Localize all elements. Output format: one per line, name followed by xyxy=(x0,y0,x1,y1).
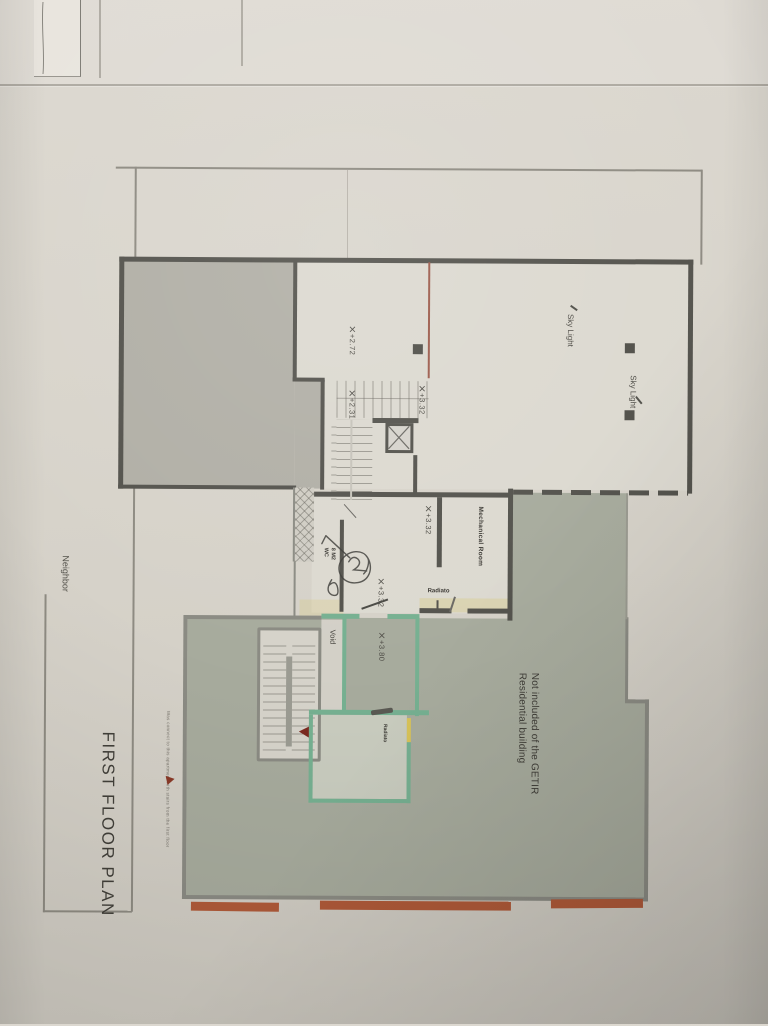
wall-mech-bottom-b xyxy=(467,608,512,613)
door-yellow xyxy=(407,718,411,742)
annotation-arrow-icon xyxy=(166,776,176,786)
spot-level-icon xyxy=(378,578,385,585)
neighbor-label: Neighbor xyxy=(61,555,71,592)
skylight-square-1 xyxy=(625,343,635,353)
residential-fill-main-upper xyxy=(187,617,627,703)
elevation-marker-upper-room: +2.72 xyxy=(348,326,357,356)
void-label: Void xyxy=(328,630,337,645)
wall-below-elevator xyxy=(413,455,417,493)
spot-level-icon xyxy=(349,326,356,333)
wc-label: WC 8 M2 xyxy=(322,548,336,560)
spot-level-icon xyxy=(419,385,426,392)
elevation-marker-stair-top: +3.32 xyxy=(418,385,427,415)
elevation-marker-hall-south: +3.32 xyxy=(377,578,386,608)
green-wall-roomB-left xyxy=(308,715,312,803)
radiator-label-mech: Radiato xyxy=(428,588,450,594)
orange-strip-1 xyxy=(191,902,279,912)
sheet-border-left xyxy=(43,594,46,912)
mechanical-room-label: Mechanical Room xyxy=(477,506,484,566)
neighbor-roof-fill xyxy=(120,261,295,489)
floor-plan-photo: { "title_block": { "title": "FIRST FLOOR… xyxy=(0,0,768,1024)
wc-label-line1: WC xyxy=(322,548,329,560)
skylight-square-3 xyxy=(413,344,423,354)
page-title: FIRST FLOOR PLAN xyxy=(97,732,118,917)
stair-left-divider xyxy=(350,420,352,500)
wall-mech-bottom-a xyxy=(419,608,451,613)
wall-thin-left-core xyxy=(293,562,295,618)
wall-right xyxy=(687,260,693,494)
orange-strip-2 xyxy=(320,901,511,911)
skylight-square-2 xyxy=(624,410,634,420)
outline-step xyxy=(625,699,649,703)
elevator-x-icon xyxy=(388,426,409,449)
residential-note-line1: Residential building xyxy=(515,673,528,795)
property-line-right xyxy=(700,170,702,265)
radiator-tick xyxy=(436,600,438,610)
sheet-border-bottom xyxy=(43,910,132,912)
elevation-marker-landing: +2.31 xyxy=(347,390,356,420)
plan-sheet: FIRST FLOOR PLAN Neighbor Sky Light Sky … xyxy=(0,0,768,1026)
skylight-label-1: Sky Light xyxy=(566,314,575,347)
outline-right-lower xyxy=(644,699,649,901)
green-wall-mid xyxy=(309,710,429,716)
lower-room-floor xyxy=(312,715,406,799)
wall-neighbor-bottom xyxy=(118,485,296,490)
spot-level-icon xyxy=(378,632,385,639)
lower-stair-center-wall xyxy=(286,656,292,746)
residential-note: Residential building Not included of the… xyxy=(515,673,541,795)
green-wall-roomA-right xyxy=(415,617,420,716)
elevation-marker-hall-west: +3.32 xyxy=(424,505,433,535)
green-wall-roomB-bottom xyxy=(308,799,410,804)
spot-level-icon xyxy=(349,390,356,397)
green-wall-roomA-left xyxy=(342,617,347,714)
wall-notch-right xyxy=(320,380,325,490)
residential-fill-main-lower xyxy=(186,699,647,899)
green-wall-top-a xyxy=(321,614,359,619)
radiator-label-room: Radiato xyxy=(382,724,388,742)
wall-mech-right xyxy=(507,489,513,621)
outline-top xyxy=(184,615,321,620)
skylight-label-2: Sky Light xyxy=(629,375,638,408)
wall-neighbor-right xyxy=(293,262,298,382)
hatched-stair-below xyxy=(293,488,314,562)
elevator-shaft xyxy=(385,423,413,453)
pen-scribble-icon xyxy=(315,516,379,608)
spot-level-icon xyxy=(425,505,432,512)
green-wall-roomB-right xyxy=(406,742,410,803)
outline-right-upper xyxy=(625,617,628,701)
property-line-top xyxy=(116,167,702,172)
elevation-marker-void-room: +3.80 xyxy=(377,632,386,662)
wall-mech-left xyxy=(437,497,442,567)
wc-label-line2: 8 M2 xyxy=(329,548,336,560)
lower-stair-flight-left xyxy=(263,642,287,750)
residential-note-line2: Not included of the GETIR xyxy=(527,673,540,795)
orange-strip-3 xyxy=(551,899,643,908)
wall-dashed-demising xyxy=(513,490,688,496)
outline-right-thin xyxy=(625,493,628,619)
